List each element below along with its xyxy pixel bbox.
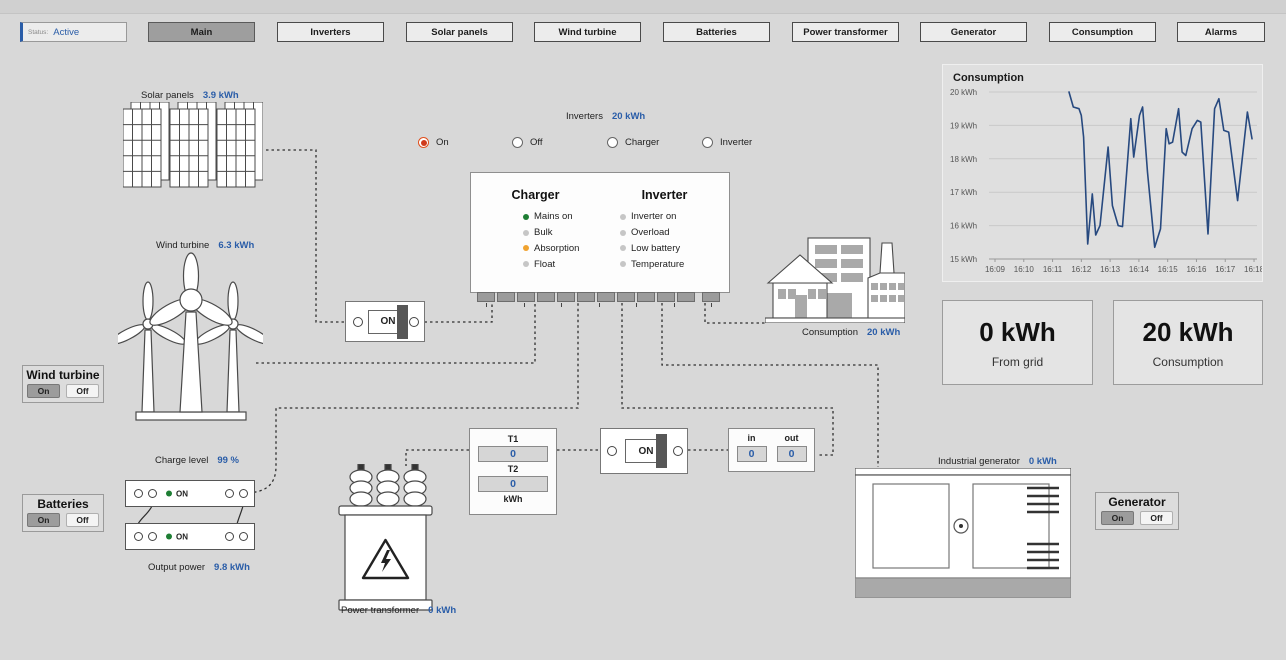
solar-panels-illustration: [123, 102, 263, 195]
batteries-on-button[interactable]: On: [27, 513, 60, 527]
t1-label: T1: [508, 434, 519, 444]
radio-off-label: Off: [530, 137, 543, 148]
battery2-status: ON: [166, 532, 188, 541]
radio-off[interactable]: Off: [512, 137, 543, 148]
status-indicator: Status: Active: [20, 22, 127, 42]
consumption-chart: 20 kWh19 kWh18 kWh17 kWh16 kWh15 kWh16:0…: [943, 65, 1262, 281]
svg-text:16:17: 16:17: [1215, 265, 1236, 274]
generator-illustration: [855, 468, 1071, 598]
battery1-on-label: ON: [176, 489, 188, 498]
led-inverter-on: [620, 214, 626, 220]
battery1-status: ON: [166, 489, 188, 498]
power-transformer-name: Power transformer: [341, 605, 419, 616]
battery1-terminal-icon: [239, 489, 248, 498]
charger-column: Charger Mains on Bulk Absorption Float: [471, 173, 600, 292]
svg-text:16:15: 16:15: [1158, 265, 1179, 274]
t2-value-field: 0: [478, 476, 548, 492]
power-transformer-illustration: [338, 464, 433, 614]
inverter-item-label: Low battery: [631, 243, 680, 254]
wind-turbine-buttons: On Off: [27, 384, 99, 398]
svg-text:20 kWh: 20 kWh: [950, 88, 977, 97]
wind-turbine-panel-title: Wind turbine: [26, 369, 99, 382]
inverter-item-label: Overload: [631, 227, 670, 238]
svg-text:16:10: 16:10: [1014, 265, 1035, 274]
inverter-item-label: Inverter on: [631, 211, 676, 222]
power-transformer-label: Power transformer 0 kWh: [341, 605, 456, 616]
kpi-from-grid: 0 kWh From grid: [942, 300, 1093, 385]
charger-item-mains-on: Mains on: [523, 211, 600, 222]
svg-text:16:14: 16:14: [1129, 265, 1150, 274]
radio-inverter-icon: [702, 137, 713, 148]
radio-charger-icon: [607, 137, 618, 148]
tab-alarms[interactable]: Alarms: [1177, 22, 1265, 42]
svg-text:18 kWh: 18 kWh: [950, 155, 977, 164]
tab-solar-panels[interactable]: Solar panels: [406, 22, 513, 42]
inverter-column: Inverter Inverter on Overload Low batter…: [600, 173, 729, 292]
wind-turbine-control-panel: Wind turbine On Off: [22, 365, 104, 403]
svg-text:16:13: 16:13: [1100, 265, 1121, 274]
battery1-terminal-icon: [148, 489, 157, 498]
tab-power-transformer[interactable]: Power transformer: [792, 22, 899, 42]
battery2-terminal-icon: [148, 532, 157, 541]
inverter-item-temperature: Temperature: [620, 259, 729, 270]
svg-text:17 kWh: 17 kWh: [950, 188, 977, 197]
svg-text:15 kWh: 15 kWh: [950, 255, 977, 264]
led-mains-on: [523, 214, 529, 220]
grid-meter-in: in 0: [737, 433, 767, 471]
charger-item-label: Mains on: [534, 211, 573, 222]
tab-generator[interactable]: Generator: [920, 22, 1027, 42]
led-float: [523, 261, 529, 267]
generator-buttons: On Off: [1101, 511, 1173, 525]
batteries-panel-title: Batteries: [37, 498, 88, 511]
batteries-control-panel: Batteries On Off: [22, 494, 104, 532]
grid-meter-panel: in 0 out 0: [728, 428, 815, 472]
led-low-battery: [620, 245, 626, 251]
radio-charger[interactable]: Charger: [607, 137, 659, 148]
consumption-site-value: 20 kWh: [867, 327, 900, 338]
inverter-item-inverter-on: Inverter on: [620, 211, 729, 222]
top-strip: [0, 0, 1286, 14]
industrial-generator-value: 0 kWh: [1029, 456, 1057, 467]
charger-item-bulk: Bulk: [523, 227, 600, 238]
tab-inverters[interactable]: Inverters: [277, 22, 384, 42]
inverter-item-label: Temperature: [631, 259, 684, 270]
breaker-switch-1[interactable]: ON: [345, 301, 425, 342]
inverter-item-overload: Overload: [620, 227, 729, 238]
solar-panels-value: 3.9 kWh: [203, 90, 239, 101]
breaker2-left-terminal-icon: [607, 446, 617, 456]
wind-turbine-on-button[interactable]: On: [27, 384, 60, 398]
svg-text:16:09: 16:09: [985, 265, 1006, 274]
wind-turbine-illustration: [118, 252, 263, 427]
inverters-name: Inverters: [566, 111, 603, 122]
consumption-chart-panel: Consumption 20 kWh19 kWh18 kWh17 kWh16 k…: [942, 64, 1263, 282]
battery1-on-led: [166, 491, 172, 497]
generator-control-panel: Generator On Off: [1095, 492, 1179, 530]
in-value-field: 0: [737, 446, 767, 462]
tab-batteries[interactable]: Batteries: [663, 22, 770, 42]
batteries-buttons: On Off: [27, 513, 99, 527]
svg-text:16:16: 16:16: [1186, 265, 1207, 274]
consumption-site-label: Consumption 20 kWh: [802, 327, 900, 338]
in-label: in: [748, 433, 756, 443]
battery2-terminal-icon: [225, 532, 234, 541]
inverter-status-panel: Charger Mains on Bulk Absorption Float I…: [470, 172, 730, 293]
status-value: Active: [53, 27, 79, 38]
kpi-consumption-label: Consumption: [1153, 355, 1224, 369]
breaker1-right-terminal-icon: [409, 317, 419, 327]
radio-off-icon: [512, 137, 523, 148]
charger-item-label: Bulk: [534, 227, 552, 238]
grid-meter-out: out 0: [777, 433, 807, 471]
kpi-consumption-value: 20 kWh: [1142, 317, 1233, 348]
inverters-label: Inverters 20 kWh: [566, 111, 645, 122]
radio-on[interactable]: On: [418, 137, 449, 148]
inverter-item-low-battery: Low battery: [620, 243, 729, 254]
wind-turbine-value: 6.3 kWh: [218, 240, 254, 251]
wind-turbine-name: Wind turbine: [156, 240, 209, 251]
breaker2-right-terminal-icon: [673, 446, 683, 456]
tab-consumption[interactable]: Consumption: [1049, 22, 1156, 42]
led-absorption: [523, 245, 529, 251]
generator-panel-title: Generator: [1108, 496, 1165, 509]
radio-charger-label: Charger: [625, 137, 659, 148]
transformer-meter-unit: kWh: [504, 494, 523, 504]
inverters-value: 20 kWh: [612, 111, 645, 122]
kpi-from-grid-value: 0 kWh: [979, 317, 1056, 348]
batteries-off-button[interactable]: Off: [66, 513, 99, 527]
battery1-terminal-icon: [225, 489, 234, 498]
svg-text:16:11: 16:11: [1043, 265, 1063, 274]
solar-panels-name: Solar panels: [141, 90, 194, 101]
svg-text:16:18: 16:18: [1244, 265, 1262, 274]
consumption-building-illustration: [765, 233, 905, 323]
breaker-switch-2[interactable]: ON: [600, 428, 688, 474]
battery1-terminal-icon: [134, 489, 143, 498]
svg-text:19 kWh: 19 kWh: [950, 121, 977, 130]
led-temperature: [620, 261, 626, 267]
status-label: Status:: [28, 29, 48, 36]
output-power-value: 9.8 kWh: [214, 562, 250, 573]
svg-text:16 kWh: 16 kWh: [950, 222, 977, 231]
out-value-field: 0: [777, 446, 807, 462]
power-transformer-value: 0 kWh: [428, 605, 456, 616]
wind-turbine-label: Wind turbine 6.3 kWh: [156, 240, 254, 251]
consumption-site-name: Consumption: [802, 327, 858, 338]
terminal-ticks: [486, 303, 712, 307]
charger-item-label: Absorption: [534, 243, 579, 254]
generator-off-button[interactable]: Off: [1140, 511, 1173, 525]
battery2-on-led: [166, 534, 172, 540]
charger-item-absorption: Absorption: [523, 243, 600, 254]
charger-item-float: Float: [523, 259, 600, 270]
battery2-on-label: ON: [176, 532, 188, 541]
radio-inverter[interactable]: Inverter: [702, 137, 752, 148]
inverter-terminal-strip: [477, 292, 720, 302]
solar-panels-label: Solar panels 3.9 kWh: [141, 90, 239, 101]
wind-turbine-off-button[interactable]: Off: [66, 384, 99, 398]
breaker1-handle-icon: [397, 305, 408, 339]
charger-item-label: Float: [534, 259, 555, 270]
led-overload: [620, 230, 626, 236]
generator-on-button[interactable]: On: [1101, 511, 1134, 525]
output-power-label: Output power 9.8 kWh: [148, 562, 250, 573]
out-label: out: [785, 433, 799, 443]
radio-on-icon: [418, 137, 429, 148]
kpi-from-grid-label: From grid: [992, 355, 1043, 369]
battery2-terminal-icon: [239, 532, 248, 541]
breaker1-left-terminal-icon: [353, 317, 363, 327]
output-power-name: Output power: [148, 562, 205, 573]
breaker2-handle-icon: [656, 434, 667, 468]
tab-wind-turbine[interactable]: Wind turbine: [534, 22, 641, 42]
charge-level-label: Charge level 99 %: [155, 455, 239, 466]
charge-level-name: Charge level: [155, 455, 208, 466]
industrial-generator-label: Industrial generator 0 kWh: [938, 456, 1057, 467]
inverter-title: Inverter: [642, 188, 688, 202]
battery-unit-2: ON: [125, 523, 255, 550]
tab-main[interactable]: Main: [148, 22, 255, 42]
industrial-generator-name: Industrial generator: [938, 456, 1020, 467]
led-bulk: [523, 230, 529, 236]
svg-text:16:12: 16:12: [1071, 265, 1092, 274]
battery-unit-1: ON: [125, 480, 255, 507]
kpi-consumption: 20 kWh Consumption: [1113, 300, 1263, 385]
t1-value-field: 0: [478, 446, 548, 462]
charge-level-value: 99 %: [217, 455, 239, 466]
t2-label: T2: [508, 464, 519, 474]
radio-on-label: On: [436, 137, 449, 148]
battery2-terminal-icon: [134, 532, 143, 541]
charger-title: Charger: [512, 188, 560, 202]
scada-dashboard: Status: Active Main Inverters Solar pane…: [0, 0, 1286, 660]
radio-inverter-label: Inverter: [720, 137, 752, 148]
transformer-meter-panel: T1 0 T2 0 kWh: [469, 428, 557, 515]
